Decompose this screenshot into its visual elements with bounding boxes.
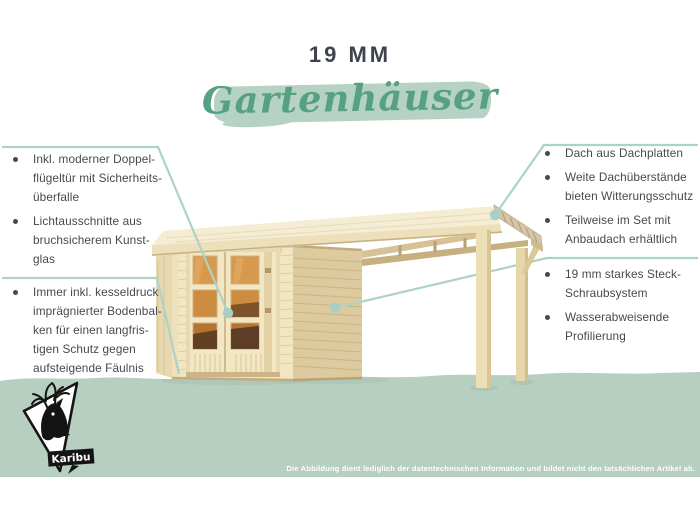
feature-text: 19 mm starkes Steck- Schraubsystem [565,265,681,303]
feature-item: Immer inkl. kesseldruck imprägnierter Bo… [13,283,193,378]
features-left-bottom: Immer inkl. kesseldruck imprägnierter Bo… [13,283,193,383]
feature-text: Lichtausschnitte aus bruchsicherem Kunst… [33,212,150,269]
bullet-icon [13,157,18,162]
features-right-top: Dach aus Dachplatten Weite Dachüberständ… [545,144,697,254]
canopy-posts [476,230,543,388]
feature-item: Teilweise im Set mit Anbaudach erhältlic… [545,211,697,249]
bullet-icon [545,151,550,156]
feature-text: Immer inkl. kesseldruck imprägnierter Bo… [33,283,162,378]
ground-band [0,372,700,477]
feature-text: Dach aus Dachplatten [565,144,683,163]
features-right-bottom: 19 mm starkes Steck- Schraubsystem Wasse… [545,265,697,351]
feature-text: Weite Dachüberstände bieten Witterungssc… [565,168,693,206]
feature-item: Wasserabweisende Profilierung [545,308,697,346]
bullet-icon [13,219,18,224]
roof-plates-edge [494,205,542,246]
bullet-icon [545,315,550,320]
page-title: 19 MM [0,42,700,68]
door-threshold [186,372,280,377]
double-door [184,244,282,377]
annotation-dot-door [223,308,233,318]
product-infographic: Karibu 19 MM Gartenhäuser Inkl. moderner… [0,0,700,525]
feature-item: Weite Dachüberstände bieten Witterungssc… [545,168,697,206]
features-left-top: Inkl. moderner Doppel- flügeltür mit Sic… [13,150,188,274]
bullet-icon [545,175,550,180]
feature-item: Lichtausschnitte aus bruchsicherem Kunst… [13,212,188,269]
feature-item: Dach aus Dachplatten [545,144,697,163]
logo-label: Karibu [47,448,94,466]
annotation-dot-wall [330,303,340,313]
feature-text: Inkl. moderner Doppel- flügeltür mit Sic… [33,150,162,207]
door-hinge [265,268,271,273]
bullet-icon [13,290,18,295]
disclaimer-text: Die Abbildung dient lediglich der datent… [95,464,695,473]
feature-item: 19 mm starkes Steck- Schraubsystem [545,265,697,303]
annotation-dot-roof [490,210,500,220]
feature-text: Wasserabweisende Profilierung [565,308,669,346]
feature-item: Inkl. moderner Doppel- flügeltür mit Sic… [13,150,188,207]
feature-text: Teilweise im Set mit Anbaudach erhältlic… [565,211,677,249]
bullet-icon [545,218,550,223]
bullet-icon [545,272,550,277]
